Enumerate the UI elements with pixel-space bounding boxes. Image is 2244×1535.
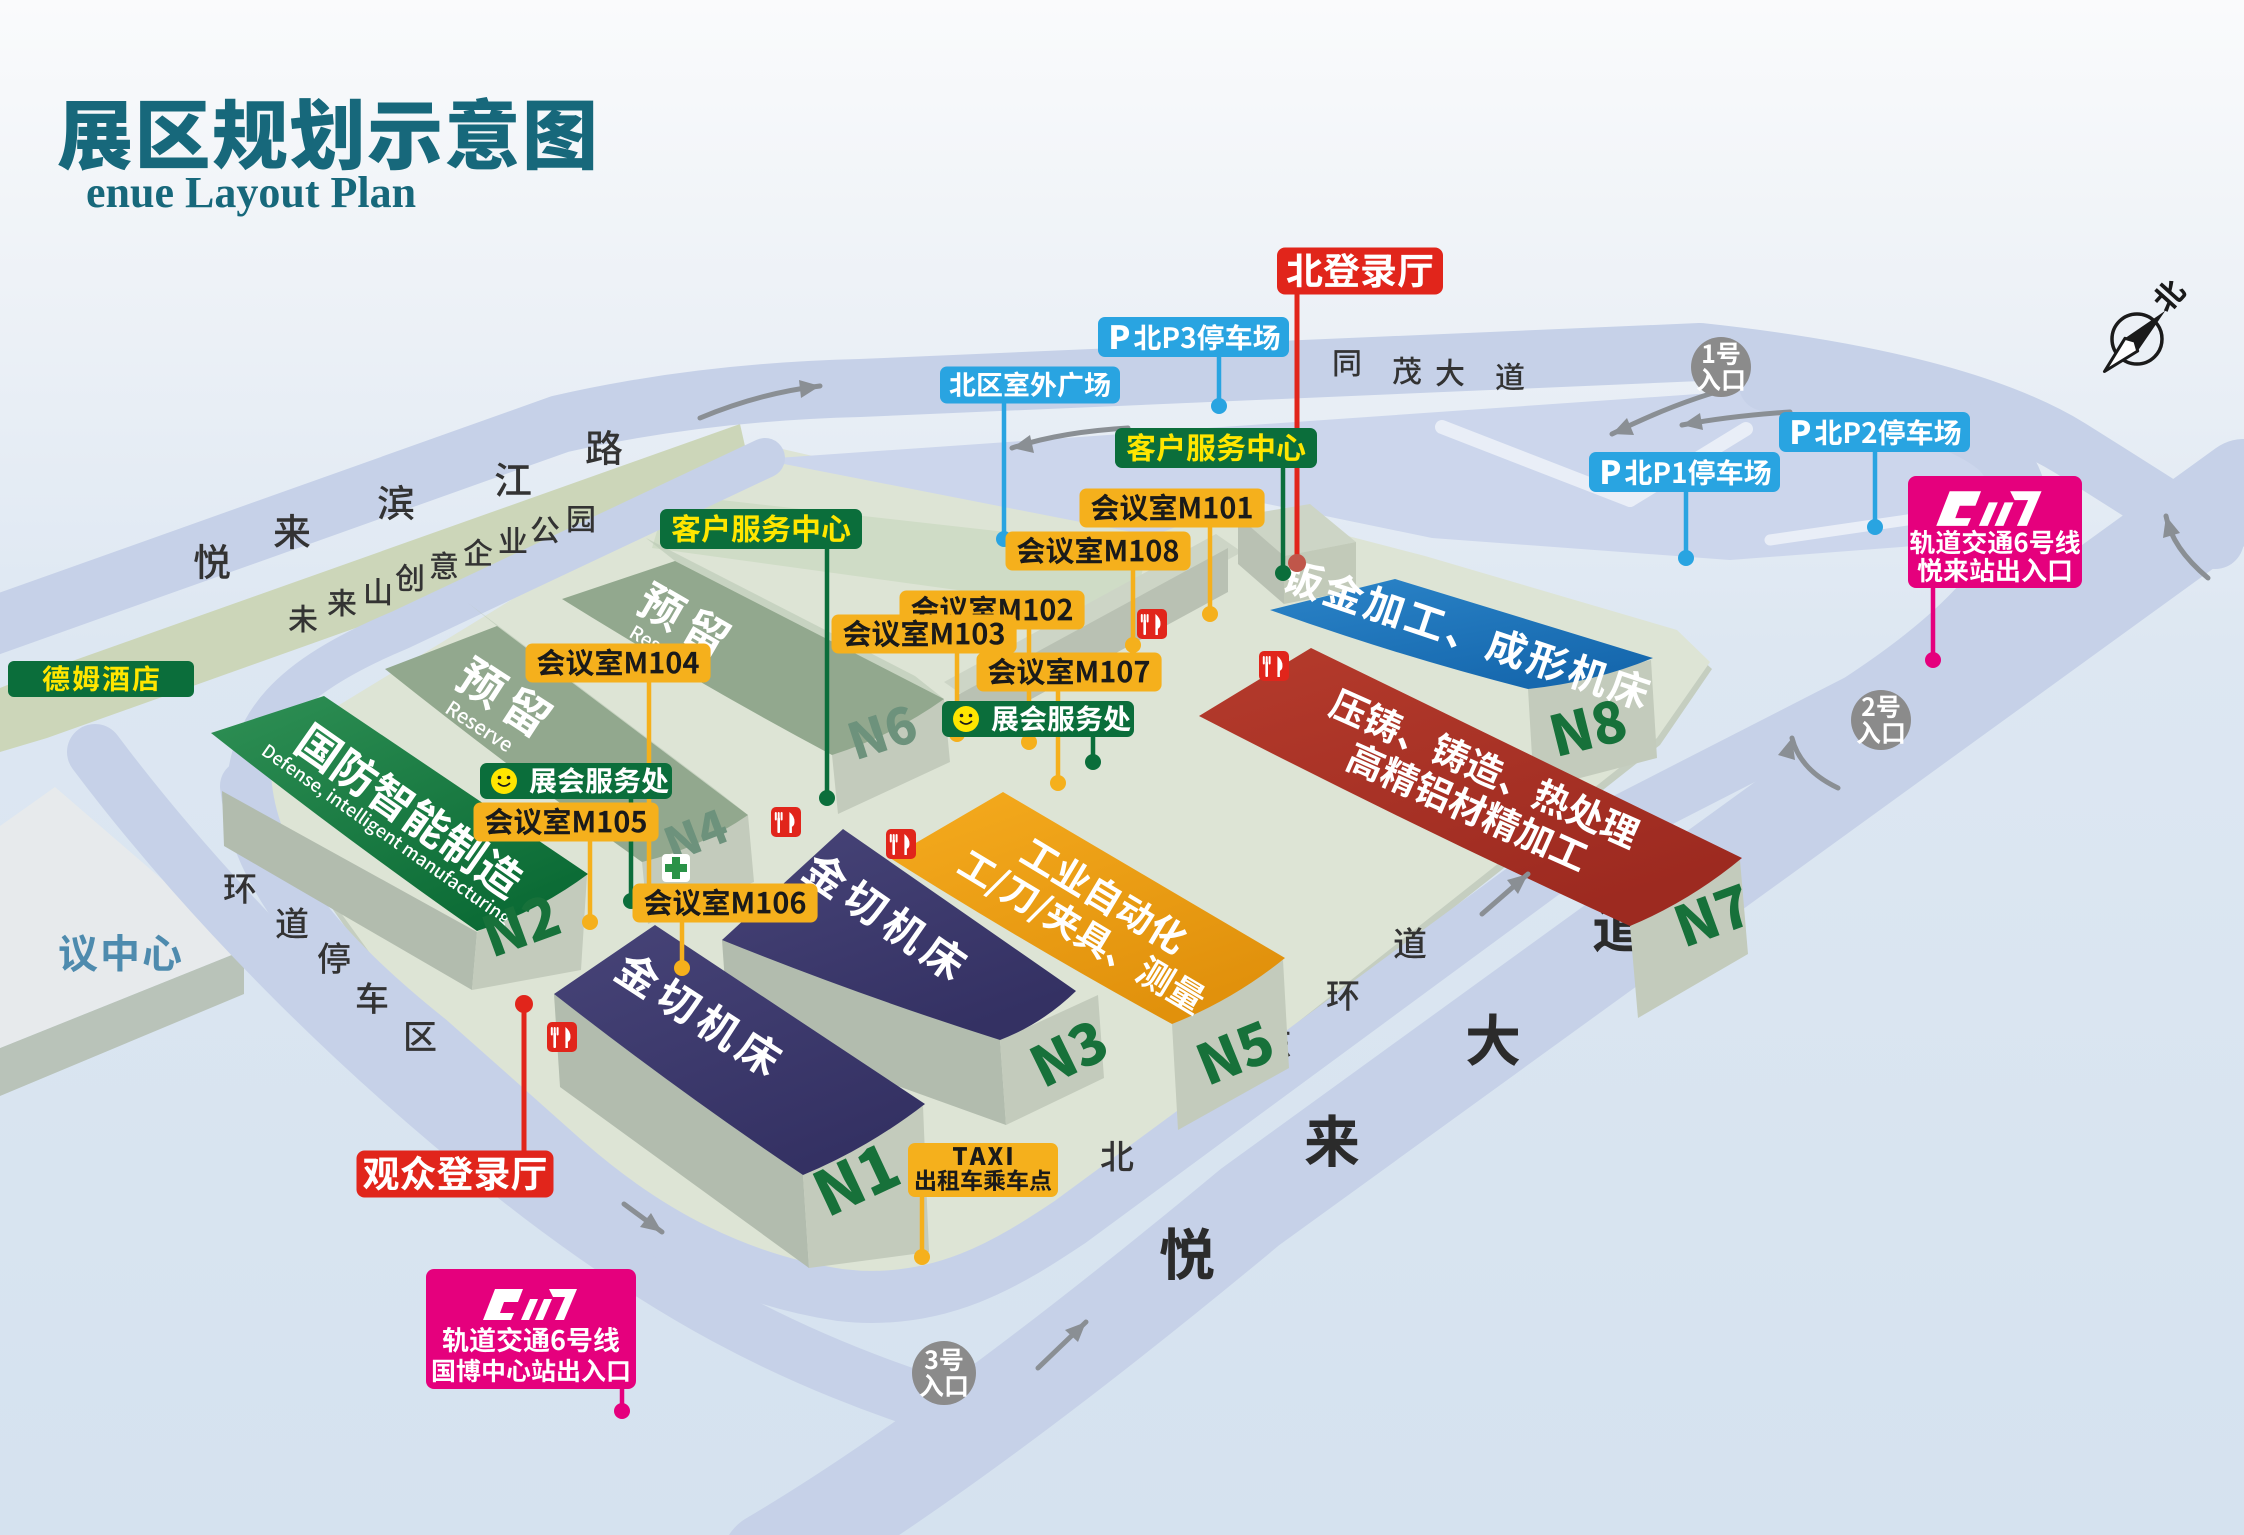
svg-text:enue Layout Plan: enue Layout Plan (86, 168, 416, 217)
